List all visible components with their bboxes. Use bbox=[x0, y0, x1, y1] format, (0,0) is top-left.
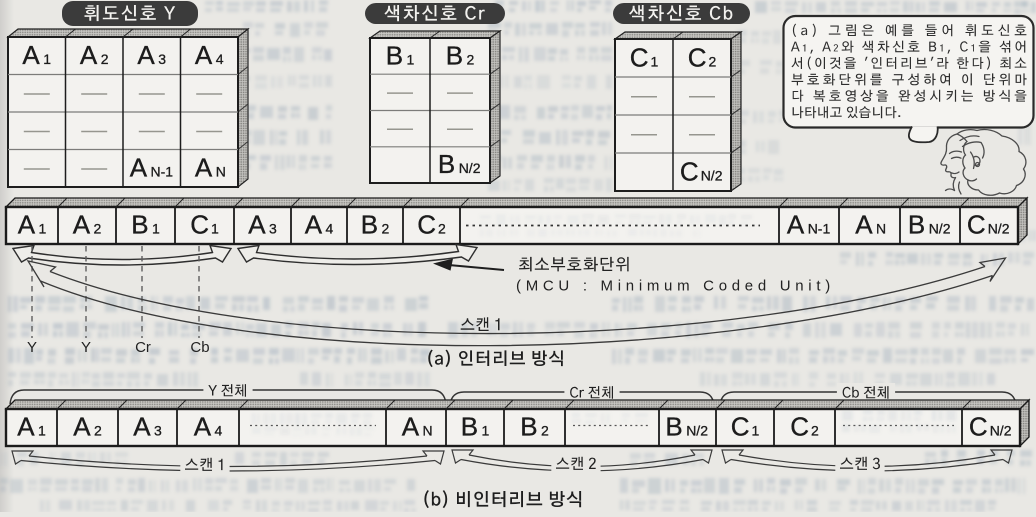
svg-text:C: C bbox=[688, 42, 707, 72]
svg-text:C: C bbox=[731, 412, 750, 442]
svg-text:N/2: N/2 bbox=[459, 160, 481, 176]
svg-text:C: C bbox=[630, 42, 649, 72]
svg-text:A: A bbox=[195, 40, 213, 70]
svg-text:Cb: Cb bbox=[190, 339, 209, 356]
svg-text:B: B bbox=[908, 210, 925, 240]
svg-text:N/2: N/2 bbox=[929, 221, 951, 237]
svg-text:A: A bbox=[18, 210, 36, 240]
svg-text:B: B bbox=[361, 210, 378, 240]
svg-text:A: A bbox=[73, 210, 91, 240]
svg-text:B: B bbox=[461, 412, 478, 442]
svg-text:C: C bbox=[680, 156, 699, 186]
svg-text:1: 1 bbox=[152, 221, 160, 237]
svg-text:A: A bbox=[787, 210, 805, 240]
svg-text:C: C bbox=[967, 210, 986, 240]
svg-text:2: 2 bbox=[94, 221, 102, 237]
svg-text:2: 2 bbox=[541, 423, 549, 439]
svg-text:A: A bbox=[305, 210, 323, 240]
svg-text:B: B bbox=[446, 40, 463, 70]
svg-text:A: A bbox=[248, 210, 266, 240]
svg-text:N/2: N/2 bbox=[988, 221, 1010, 237]
svg-text:2: 2 bbox=[382, 221, 390, 237]
svg-text:2: 2 bbox=[101, 51, 109, 67]
svg-text:A: A bbox=[80, 40, 98, 70]
svg-text:C: C bbox=[969, 412, 988, 442]
svg-text:1: 1 bbox=[38, 423, 46, 439]
svg-text:A: A bbox=[73, 412, 91, 442]
svg-text:1: 1 bbox=[43, 51, 51, 67]
svg-text:B: B bbox=[520, 412, 537, 442]
svg-text:1: 1 bbox=[407, 51, 415, 67]
svg-text:C: C bbox=[790, 412, 809, 442]
svg-text:3: 3 bbox=[158, 51, 166, 67]
svg-text:A: A bbox=[855, 210, 873, 240]
svg-text:Cr: Cr bbox=[135, 339, 151, 356]
svg-text:(MCU : Minimum Coded Unit): (MCU : Minimum Coded Unit) bbox=[516, 278, 835, 295]
svg-text:A: A bbox=[195, 153, 213, 183]
svg-text:A: A bbox=[17, 412, 35, 442]
svg-text:2: 2 bbox=[709, 53, 717, 69]
svg-text:3: 3 bbox=[269, 221, 277, 237]
svg-text:B: B bbox=[665, 412, 682, 442]
svg-text:N/2: N/2 bbox=[701, 167, 723, 183]
svg-text:4: 4 bbox=[215, 423, 223, 439]
svg-text:A: A bbox=[194, 412, 212, 442]
svg-text:N: N bbox=[423, 423, 433, 439]
svg-text:A: A bbox=[133, 412, 151, 442]
svg-text:B: B bbox=[131, 210, 148, 240]
svg-text:N-1: N-1 bbox=[151, 164, 174, 180]
svg-text:Y: Y bbox=[27, 339, 37, 356]
svg-text:C: C bbox=[417, 210, 436, 240]
svg-text:B: B bbox=[386, 40, 403, 70]
svg-text:4: 4 bbox=[326, 221, 334, 237]
svg-text:N/2: N/2 bbox=[990, 423, 1012, 439]
svg-text:1: 1 bbox=[39, 221, 47, 237]
svg-text:2: 2 bbox=[811, 423, 819, 439]
svg-text:2: 2 bbox=[467, 51, 475, 67]
svg-text:1: 1 bbox=[211, 221, 219, 237]
svg-text:N: N bbox=[216, 164, 226, 180]
svg-text:C: C bbox=[190, 210, 209, 240]
svg-text:A: A bbox=[130, 153, 148, 183]
svg-text:1: 1 bbox=[651, 53, 659, 69]
svg-text:N: N bbox=[876, 221, 886, 237]
svg-text:3: 3 bbox=[154, 423, 162, 439]
svg-text:A: A bbox=[22, 40, 40, 70]
svg-text:A: A bbox=[402, 412, 420, 442]
svg-text:A: A bbox=[137, 40, 155, 70]
svg-text:B: B bbox=[438, 149, 455, 179]
svg-text:N-1: N-1 bbox=[808, 221, 831, 237]
svg-text:2: 2 bbox=[438, 221, 446, 237]
svg-text:1: 1 bbox=[752, 423, 760, 439]
svg-text:4: 4 bbox=[216, 51, 224, 67]
svg-text:Y: Y bbox=[81, 339, 91, 356]
svg-text:2: 2 bbox=[94, 423, 102, 439]
svg-text:1: 1 bbox=[482, 423, 490, 439]
svg-text:N/2: N/2 bbox=[686, 423, 708, 439]
